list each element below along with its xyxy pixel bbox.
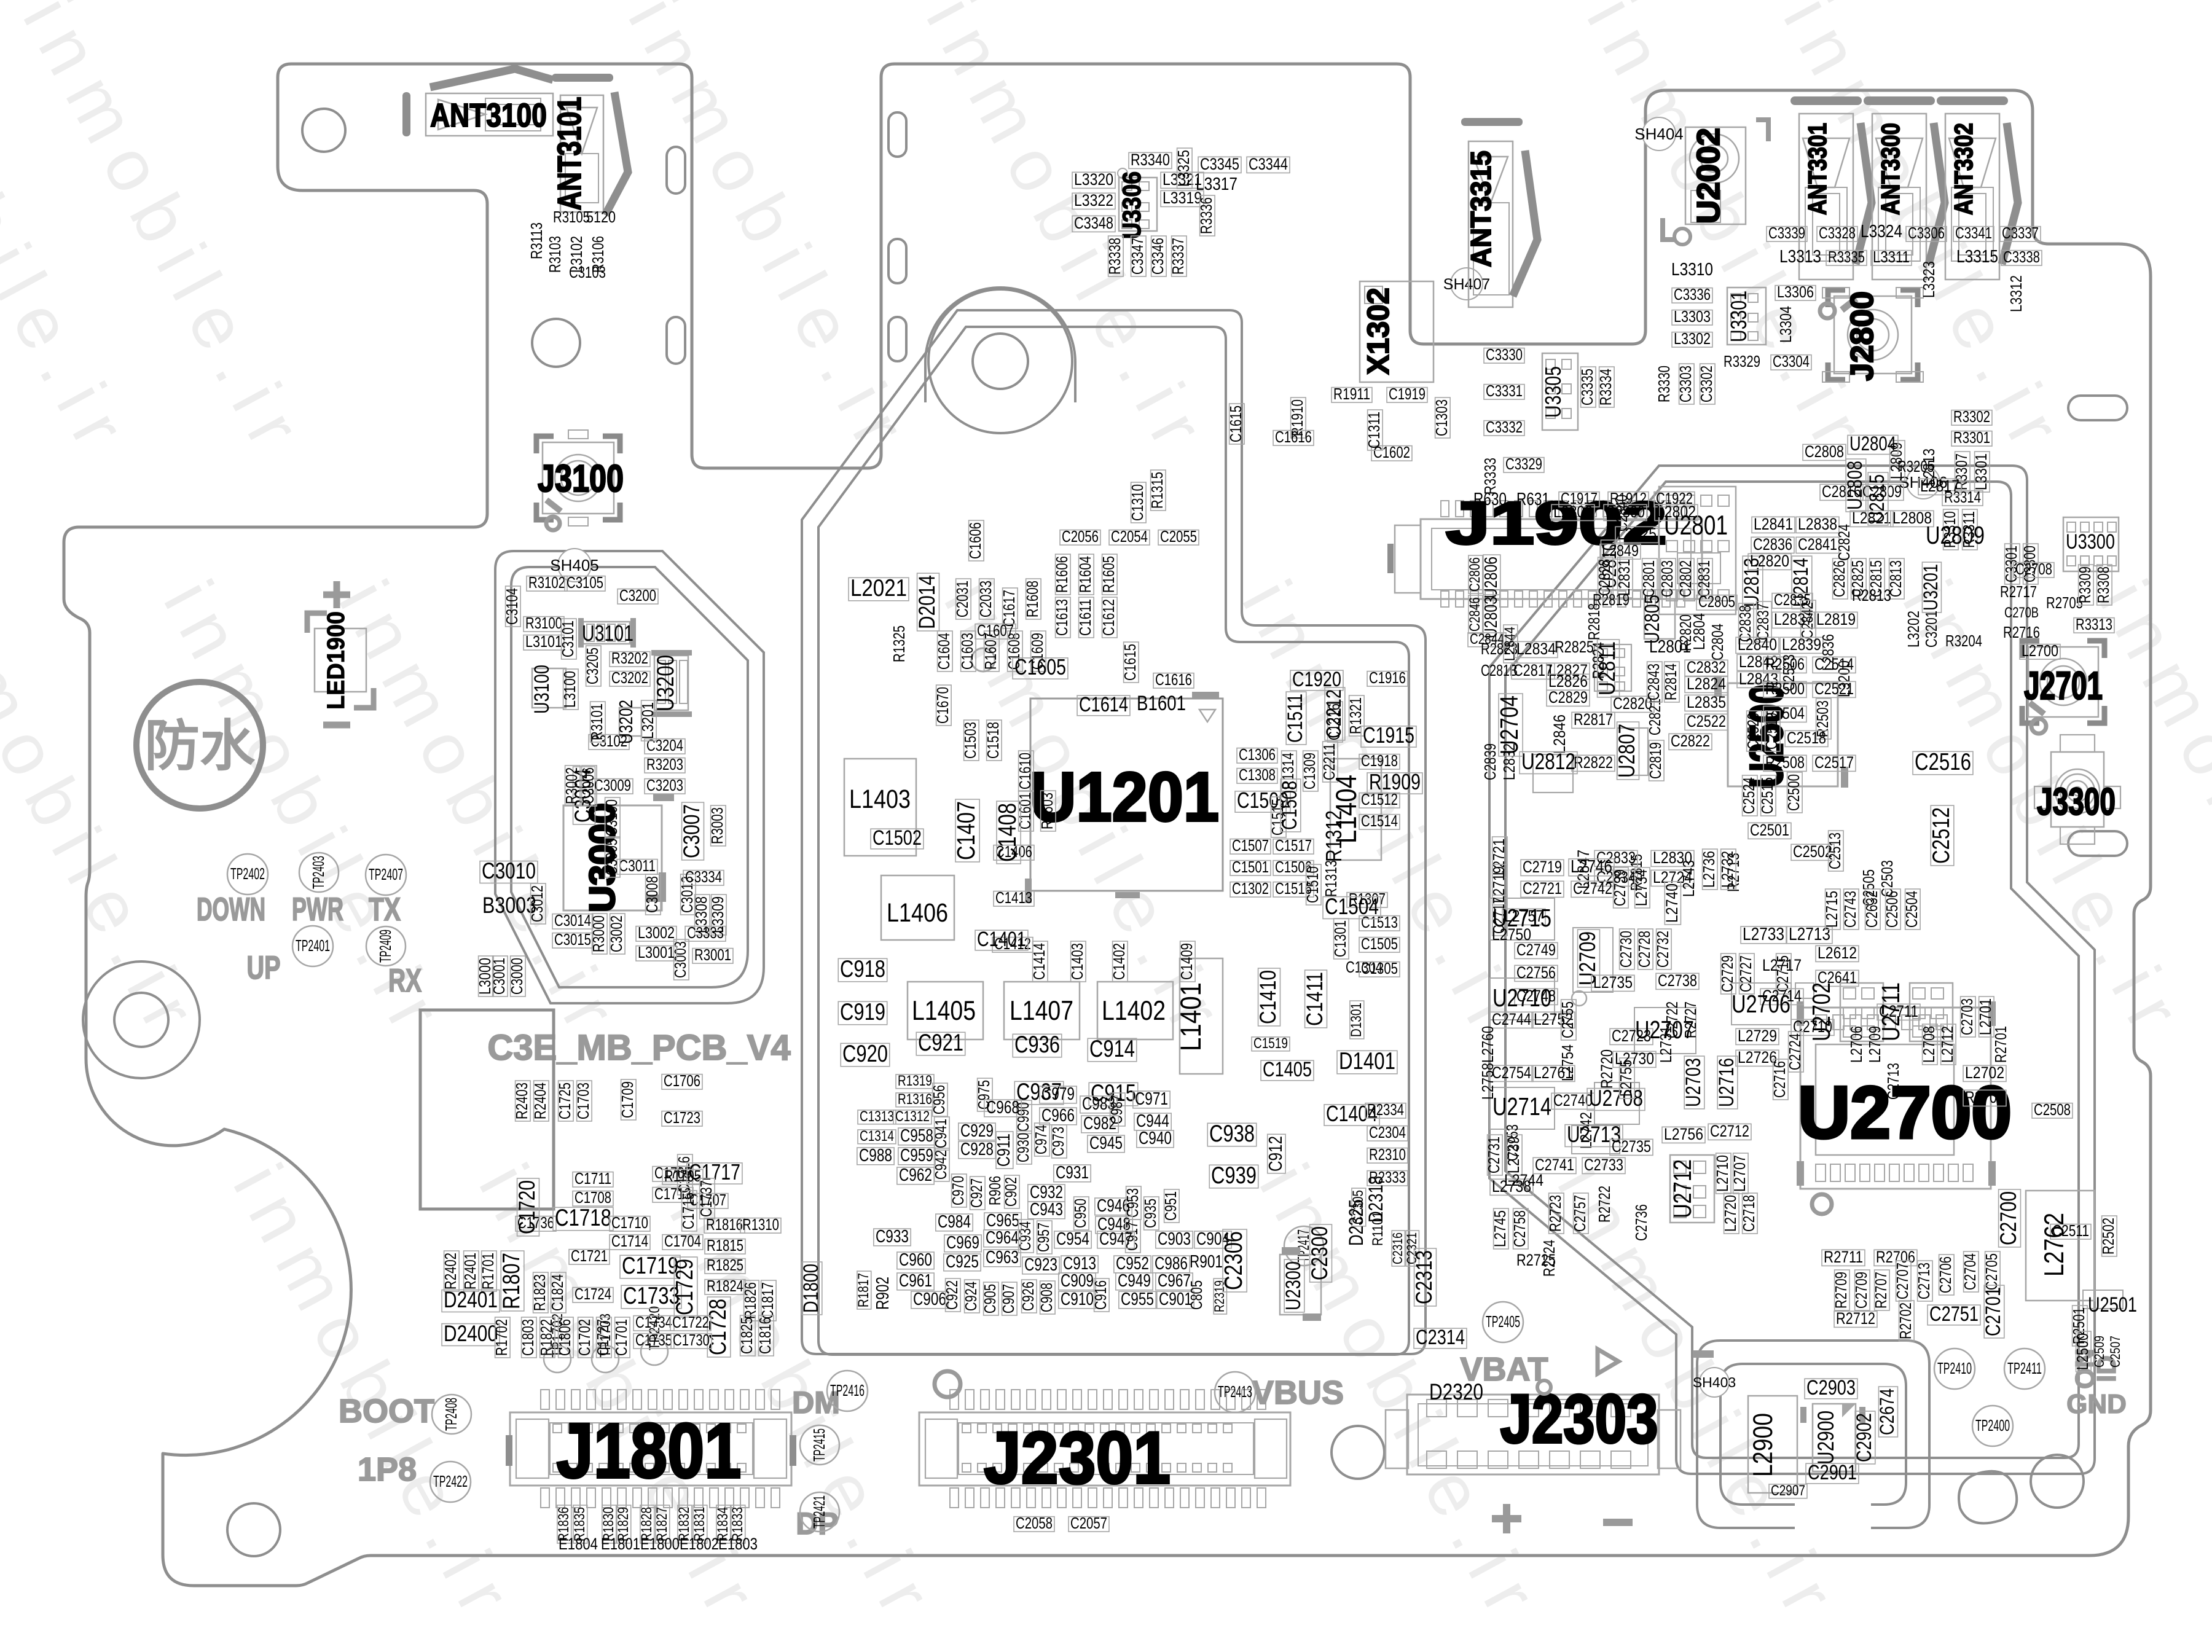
svg-text:R1909: R1909 — [1369, 770, 1421, 794]
svg-text:R2813: R2813 — [1852, 585, 1891, 605]
svg-text:防水: 防水 — [144, 716, 256, 777]
svg-text:L2743: L2743 — [1681, 860, 1698, 897]
svg-text:C1310: C1310 — [1129, 484, 1147, 521]
svg-text:ANT3302: ANT3302 — [1949, 123, 1978, 215]
svg-text:C935: C935 — [1142, 1199, 1159, 1228]
svg-text:L3306: L3306 — [1777, 284, 1814, 301]
svg-text:C2518: C2518 — [1787, 728, 1826, 747]
svg-text:C3330: C3330 — [1486, 346, 1523, 364]
svg-text:U2707: U2707 — [1635, 1016, 1694, 1044]
svg-text:L2745: L2745 — [1492, 1210, 1509, 1247]
svg-text:C1702: C1702 — [576, 1319, 594, 1356]
svg-text:C1503: C1503 — [962, 722, 979, 759]
svg-text:R1815: R1815 — [707, 1237, 743, 1255]
svg-text:C1414: C1414 — [1031, 943, 1048, 980]
svg-text:L2900: L2900 — [1748, 1413, 1778, 1477]
svg-text:R1816: R1816 — [706, 1216, 743, 1234]
svg-text:C3001: C3001 — [491, 958, 508, 995]
svg-text:C1610: C1610 — [1017, 753, 1034, 789]
svg-text:C2300: C2300 — [1306, 1226, 1332, 1280]
svg-text:L2720: L2720 — [1722, 1195, 1739, 1232]
svg-text:L2712: L2712 — [1939, 1026, 1956, 1063]
svg-text:C1308: C1308 — [1239, 767, 1276, 784]
svg-text:C933: C933 — [876, 1227, 909, 1247]
svg-text:R3333: R3333 — [1482, 458, 1499, 495]
svg-text:C928: C928 — [960, 1140, 994, 1159]
svg-text:E1801: E1801 — [601, 1534, 640, 1553]
svg-text:L2744: L2744 — [1504, 1170, 1543, 1189]
svg-text:C930: C930 — [1015, 1133, 1032, 1162]
svg-text:R1315: R1315 — [1149, 472, 1166, 509]
svg-text:C3335: C3335 — [1579, 369, 1596, 405]
svg-text:C2744: C2744 — [1492, 1009, 1531, 1028]
svg-text:C1724: C1724 — [575, 1286, 611, 1303]
svg-text:R2814: R2814 — [1663, 664, 1680, 700]
svg-text:R2334: R2334 — [1367, 1102, 1404, 1119]
svg-text:C2058: C2058 — [1016, 1515, 1053, 1532]
svg-text:C3003: C3003 — [672, 941, 689, 978]
svg-text:L3302: L3302 — [1674, 331, 1711, 348]
svg-text:C2727: C2727 — [1738, 955, 1755, 992]
svg-text:C805: C805 — [1188, 1280, 1206, 1310]
svg-text:C1512: C1512 — [1361, 791, 1398, 808]
svg-text:C969: C969 — [946, 1233, 979, 1253]
svg-text:C2523: C2523 — [1781, 654, 1798, 691]
svg-text:C2713: C2713 — [1916, 1262, 1933, 1299]
svg-text:C2509: C2509 — [2092, 1336, 2107, 1368]
svg-text:U2501: U2501 — [2088, 1293, 2137, 1317]
svg-text:C2802: C2802 — [1677, 560, 1695, 597]
svg-text:E1803: E1803 — [718, 1534, 758, 1553]
svg-text:C1721: C1721 — [571, 1248, 608, 1265]
svg-text:C2513: C2513 — [1827, 832, 1844, 869]
svg-text:C905: C905 — [982, 1284, 999, 1313]
svg-text:L2717: L2717 — [1762, 955, 1802, 974]
svg-text:C2731: C2731 — [1486, 1137, 1503, 1173]
svg-text:L1402: L1402 — [1102, 996, 1166, 1026]
svg-text:SH405: SH405 — [550, 556, 599, 574]
svg-text:C1603: C1603 — [959, 633, 976, 670]
svg-text:C912: C912 — [1265, 1136, 1286, 1172]
svg-text:C3006: C3006 — [580, 767, 597, 804]
svg-text:D2318: D2318 — [1365, 1176, 1387, 1223]
svg-text:L2736: L2736 — [1701, 851, 1718, 888]
svg-text:C943: C943 — [1030, 1200, 1063, 1219]
svg-text:L3323: L3323 — [1921, 261, 1938, 298]
svg-text:L2708: L2708 — [1921, 1026, 1938, 1063]
svg-text:C3008: C3008 — [644, 876, 661, 913]
svg-text:L3324: L3324 — [1861, 222, 1902, 241]
svg-text:C973: C973 — [1050, 1127, 1067, 1156]
svg-text:C3103: C3103 — [569, 264, 606, 281]
svg-text:C2521: C2521 — [1814, 679, 1854, 698]
svg-text:C3E_MB_PCB_V4: C3E_MB_PCB_V4 — [487, 1028, 790, 1068]
svg-text:VBUS: VBUS — [1252, 1374, 1344, 1411]
svg-text:C922: C922 — [944, 1280, 961, 1310]
svg-text:C2735: C2735 — [1612, 1137, 1651, 1156]
svg-text:C2033: C2033 — [978, 581, 995, 617]
svg-text:C2806: C2806 — [1467, 557, 1483, 592]
svg-text:C2718: C2718 — [1741, 1195, 1758, 1232]
svg-text:L2840: L2840 — [1738, 635, 1777, 654]
svg-text:TP2415: TP2415 — [810, 1428, 828, 1462]
svg-text:R1911: R1911 — [1333, 386, 1370, 403]
svg-text:R3335: R3335 — [1828, 249, 1865, 266]
svg-text:C2515: C2515 — [1759, 777, 1776, 814]
svg-text:C3303: C3303 — [1677, 366, 1695, 402]
svg-text:R3302: R3302 — [1953, 409, 1990, 426]
svg-text:U2715: U2715 — [1492, 904, 1551, 932]
svg-text:C956: C956 — [931, 1085, 948, 1114]
svg-text:R3103: R3103 — [547, 236, 564, 273]
svg-text:C2732: C2732 — [1655, 931, 1672, 968]
svg-text:R2310: R2310 — [1369, 1146, 1406, 1164]
svg-text:L2700: L2700 — [2022, 643, 2058, 660]
svg-text:C3012: C3012 — [529, 885, 546, 922]
svg-text:C1306: C1306 — [1239, 746, 1276, 764]
svg-text:C3005: C3005 — [603, 839, 621, 875]
svg-text:C2517: C2517 — [1814, 753, 1854, 772]
svg-text:J2301: J2301 — [984, 1417, 1171, 1499]
svg-text:C1722: C1722 — [672, 1314, 709, 1331]
svg-text:C910: C910 — [1061, 1290, 1094, 1309]
svg-text:C2054: C2054 — [1111, 528, 1148, 546]
svg-text:C1507: C1507 — [1232, 837, 1269, 855]
svg-text:C963: C963 — [986, 1248, 1019, 1267]
svg-text:C964: C964 — [986, 1228, 1019, 1248]
svg-text:R2822: R2822 — [1574, 753, 1613, 772]
svg-text:L1405: L1405 — [912, 996, 976, 1026]
svg-text:L2735: L2735 — [1593, 973, 1633, 992]
svg-text:C966: C966 — [1041, 1106, 1075, 1125]
svg-text:C971: C971 — [1135, 1089, 1168, 1109]
svg-text:L2739: L2739 — [1505, 1137, 1523, 1173]
svg-text:C2707: C2707 — [1894, 1262, 1912, 1299]
svg-text:C2846: C2846 — [1467, 597, 1483, 632]
svg-text:R3330: R3330 — [1656, 366, 1673, 402]
svg-text:U2815: U2815 — [1865, 474, 1889, 523]
svg-text:R1605: R1605 — [1100, 556, 1118, 593]
svg-text:C1725: C1725 — [557, 1082, 574, 1119]
svg-text:R906: R906 — [987, 1176, 1004, 1205]
svg-text:DOWN: DOWN — [197, 891, 265, 928]
svg-text:C2031: C2031 — [954, 581, 971, 617]
svg-text:C2508: C2508 — [2034, 1102, 2071, 1119]
svg-text:C2901: C2901 — [1808, 1461, 1857, 1484]
svg-text:C1616: C1616 — [1275, 429, 1312, 446]
svg-text:ANT3100: ANT3100 — [430, 97, 547, 134]
svg-text:L3310: L3310 — [1671, 260, 1713, 280]
svg-text:U3305: U3305 — [1541, 366, 1566, 418]
svg-text:C929: C929 — [960, 1121, 994, 1141]
svg-text:R3101: R3101 — [589, 703, 606, 740]
svg-text:L1404: L1404 — [1330, 775, 1363, 844]
svg-text:L2803: L2803 — [1553, 502, 1593, 521]
svg-text:L2612: L2612 — [1818, 943, 1857, 962]
svg-text:TP2410: TP2410 — [1937, 1359, 1972, 1377]
svg-text:U2704: U2704 — [1495, 695, 1523, 754]
svg-text:L3301: L3301 — [1973, 453, 1990, 490]
svg-text:C2056: C2056 — [1062, 528, 1099, 546]
svg-text:C1611: C1611 — [1077, 599, 1094, 636]
svg-text:C1614: C1614 — [1079, 693, 1128, 716]
svg-text:L3319: L3319 — [1163, 188, 1202, 207]
svg-text:R3000: R3000 — [590, 915, 608, 952]
svg-text:TP2422: TP2422 — [433, 1472, 468, 1490]
svg-text:L2707: L2707 — [1732, 1155, 1749, 1192]
svg-text:C1915: C1915 — [1363, 723, 1414, 748]
svg-text:R2404: R2404 — [532, 1082, 549, 1119]
svg-text:L2732: L2732 — [1719, 851, 1736, 888]
svg-text:U2804: U2804 — [1849, 433, 1896, 455]
svg-text:C2313: C2313 — [1411, 1250, 1437, 1304]
svg-text:C961: C961 — [899, 1271, 932, 1291]
svg-text:C2805: C2805 — [1698, 593, 1735, 611]
svg-text:U2300: U2300 — [1282, 1261, 1305, 1310]
svg-text:C1403: C1403 — [1069, 943, 1086, 980]
svg-text:R2702: R2702 — [1897, 1302, 1915, 1339]
svg-text:C1313: C1313 — [860, 1108, 894, 1125]
svg-text:C2803: C2803 — [1659, 560, 1676, 597]
svg-text:C1409: C1409 — [1179, 943, 1196, 980]
svg-text:C3347: C3347 — [1129, 238, 1147, 275]
svg-text:C2632: C2632 — [1864, 891, 1881, 928]
svg-text:C1803: C1803 — [520, 1319, 537, 1356]
svg-text:SH407: SH407 — [1443, 276, 1490, 293]
svg-text:C908: C908 — [1038, 1283, 1056, 1312]
svg-text:C2742: C2742 — [1573, 879, 1612, 898]
svg-text:C1302: C1302 — [1232, 880, 1269, 898]
svg-text:C957: C957 — [1035, 1223, 1053, 1252]
svg-text:U2703: U2703 — [1682, 1058, 1705, 1107]
svg-text:C3007: C3007 — [678, 804, 704, 858]
svg-text:C927: C927 — [968, 1178, 986, 1208]
svg-text:C2712: C2712 — [1710, 1121, 1749, 1140]
svg-text:L2835: L2835 — [1687, 692, 1726, 711]
svg-text:C2836: C2836 — [1753, 534, 1792, 554]
svg-text:R1321: R1321 — [1347, 697, 1365, 734]
svg-text:R2709: R2709 — [1833, 1272, 1850, 1309]
svg-text:C2738: C2738 — [1658, 971, 1697, 990]
svg-text:U2712: U2712 — [1668, 1159, 1696, 1218]
svg-text:C1919: C1919 — [1389, 386, 1426, 403]
svg-text:L2729: L2729 — [1738, 1026, 1777, 1045]
svg-text:L2831: L2831 — [1616, 559, 1633, 596]
svg-text:C270B: C270B — [2004, 605, 2039, 621]
svg-text:C2721: C2721 — [1523, 879, 1562, 898]
svg-text:C919: C919 — [840, 999, 885, 1025]
svg-text:R1823: R1823 — [531, 1274, 549, 1311]
svg-text:C1729: C1729 — [672, 1259, 698, 1315]
svg-text:C967: C967 — [1158, 1271, 1191, 1291]
svg-text:C3328: C3328 — [1819, 225, 1856, 242]
svg-text:C2907: C2907 — [1771, 1482, 1805, 1499]
svg-text:E1802: E1802 — [680, 1534, 719, 1553]
svg-text:R3105: R3105 — [553, 209, 590, 226]
svg-text:ANT3315: ANT3315 — [1465, 151, 1497, 267]
svg-text:R3205: R3205 — [1897, 458, 1934, 476]
svg-text:C3338: C3338 — [2003, 249, 2040, 266]
svg-text:L2710: L2710 — [1714, 1155, 1732, 1192]
svg-text:L2730: L2730 — [1615, 1049, 1654, 1068]
svg-text:TP2401: TP2401 — [296, 936, 330, 955]
svg-text:C1730: C1730 — [673, 1332, 710, 1349]
svg-text:L2734: L2734 — [1633, 869, 1650, 906]
svg-text:C903: C903 — [1158, 1229, 1191, 1249]
svg-text:C947: C947 — [1099, 1229, 1132, 1249]
svg-text:U2807: U2807 — [1614, 724, 1639, 778]
svg-text:C2822: C2822 — [1671, 731, 1710, 750]
svg-text:C2724: C2724 — [1787, 1033, 1804, 1070]
svg-text:C1510: C1510 — [1304, 866, 1322, 903]
svg-text:L3001: L3001 — [638, 944, 675, 961]
svg-text:L2754: L2754 — [1559, 1044, 1577, 1081]
svg-text:C2828: C2828 — [1596, 559, 1614, 596]
svg-text:TP2421: TP2421 — [810, 1495, 828, 1529]
svg-text:C1312: C1312 — [895, 1108, 930, 1125]
svg-text:L3202: L3202 — [1905, 611, 1923, 648]
svg-text:L2760: L2760 — [1480, 1026, 1497, 1063]
svg-text:C1607: C1607 — [977, 622, 1014, 640]
svg-text:B1601: B1601 — [1137, 692, 1186, 715]
svg-text:LED1900: LED1900 — [323, 611, 350, 710]
svg-text:C1411: C1411 — [1301, 972, 1327, 1026]
svg-text:C1501: C1501 — [1232, 859, 1269, 876]
svg-text:U2900: U2900 — [1813, 1411, 1838, 1465]
svg-text:U2811: U2811 — [1594, 641, 1620, 695]
svg-text:U3301: U3301 — [1727, 291, 1751, 342]
svg-text:R1604: R1604 — [1077, 556, 1094, 593]
svg-text:C1511: C1511 — [1284, 694, 1307, 743]
svg-text:R901: R901 — [1190, 1252, 1223, 1272]
svg-text:C2501: C2501 — [1750, 820, 1789, 839]
svg-text:C2705: C2705 — [1983, 1253, 2001, 1290]
svg-text:U2716: U2716 — [1715, 1058, 1738, 1107]
svg-text:C2733: C2733 — [1584, 1155, 1623, 1174]
svg-text:ANT3301: ANT3301 — [1803, 123, 1832, 215]
svg-text:C2314: C2314 — [1416, 1326, 1465, 1349]
svg-text:L3002: L3002 — [638, 925, 675, 942]
svg-text:5120: 5120 — [586, 209, 616, 226]
svg-text:ANT3300: ANT3300 — [1876, 123, 1905, 215]
svg-text:C2758: C2758 — [1512, 1210, 1529, 1247]
svg-text:U2710: U2710 — [1492, 984, 1551, 1012]
svg-text:R3113: R3113 — [528, 222, 546, 259]
svg-text:L3304: L3304 — [1778, 306, 1795, 343]
svg-text:C907: C907 — [1000, 1284, 1018, 1313]
svg-text:C2831: C2831 — [1696, 560, 1713, 597]
svg-text:C3104: C3104 — [504, 588, 521, 625]
svg-text:C979: C979 — [1041, 1084, 1075, 1104]
svg-text:C3302: C3302 — [1698, 366, 1716, 402]
svg-text:C1517: C1517 — [1275, 837, 1312, 855]
svg-text:C3341: C3341 — [1955, 225, 1992, 242]
svg-text:C3332: C3332 — [1486, 419, 1523, 436]
svg-text:C1615: C1615 — [1228, 405, 1245, 442]
svg-text:C1918: C1918 — [1361, 753, 1398, 770]
svg-text:C2703: C2703 — [1959, 998, 1976, 1035]
svg-text:C2055: C2055 — [1160, 528, 1197, 546]
svg-text:J2303: J2303 — [1500, 1380, 1658, 1457]
svg-text:C939: C939 — [1211, 1162, 1257, 1189]
svg-text:C2500: C2500 — [1786, 774, 1803, 811]
svg-text:L2839: L2839 — [1782, 635, 1821, 654]
svg-text:C2704: C2704 — [1962, 1253, 1979, 1290]
svg-text:C1311: C1311 — [1366, 412, 1383, 448]
svg-text:C2730: C2730 — [1618, 931, 1635, 968]
svg-text:BOOT: BOOT — [339, 1393, 434, 1430]
svg-text:C1612: C1612 — [1100, 599, 1118, 636]
svg-text:C1708: C1708 — [575, 1189, 611, 1207]
svg-text:C2316: C2316 — [1390, 1232, 1405, 1264]
svg-text:C2824: C2824 — [1836, 524, 1853, 561]
svg-text:C2520: C2520 — [1745, 713, 1762, 750]
svg-text:C2706: C2706 — [1937, 1256, 1955, 1293]
svg-text:C2506: C2506 — [1884, 891, 1901, 928]
svg-text:R1822: R1822 — [538, 1319, 555, 1356]
svg-text:C2306: C2306 — [1219, 1231, 1247, 1290]
svg-text:L2819: L2819 — [1816, 609, 1856, 628]
svg-text:C2507: C2507 — [2108, 1336, 2123, 1368]
svg-text:L1407: L1407 — [1010, 996, 1073, 1026]
svg-text:L3322: L3322 — [1074, 190, 1113, 209]
svg-text:R1817: R1817 — [855, 1273, 872, 1307]
svg-text:C2751: C2751 — [1929, 1302, 1979, 1326]
svg-text:R3309: R3309 — [2077, 566, 2094, 603]
svg-text:L2802: L2802 — [1657, 502, 1696, 521]
svg-text:C2524: C2524 — [1741, 777, 1758, 814]
svg-text:L2500: L2500 — [2074, 1333, 2092, 1370]
svg-text:R2818: R2818 — [1586, 603, 1603, 640]
svg-text:C1816: C1816 — [757, 1317, 774, 1354]
svg-text:C2755: C2755 — [1559, 1001, 1577, 1038]
svg-text:TP2403: TP2403 — [309, 856, 327, 889]
svg-text:L2837: L2837 — [1774, 609, 1813, 628]
svg-text:C955: C955 — [1121, 1290, 1154, 1309]
svg-text:C918: C918 — [840, 956, 885, 982]
svg-text:C1701: C1701 — [613, 1319, 630, 1356]
svg-text:C3339: C3339 — [1768, 225, 1805, 242]
svg-text:L1401: L1401 — [1175, 982, 1207, 1051]
svg-text:C3334: C3334 — [685, 869, 722, 886]
svg-text:C925: C925 — [946, 1252, 979, 1272]
svg-text:C3200: C3200 — [619, 587, 656, 605]
svg-text:U3202: U3202 — [616, 700, 637, 744]
svg-text:R1826: R1826 — [742, 1282, 759, 1319]
svg-text:C2700: C2700 — [1995, 1191, 2021, 1245]
svg-text:L2733: L2733 — [1743, 925, 1784, 944]
svg-text:TP2411: TP2411 — [2007, 1359, 2042, 1377]
svg-text:TP2409: TP2409 — [376, 930, 394, 963]
svg-text:R2502: R2502 — [2100, 1218, 2117, 1255]
svg-text:U3201: U3201 — [1920, 564, 1942, 611]
svg-text:C1405: C1405 — [1263, 1058, 1312, 1081]
svg-text:U2809: U2809 — [1926, 521, 1985, 549]
svg-text:L2820: L2820 — [1750, 551, 1789, 570]
svg-text:C1718: C1718 — [555, 1205, 611, 1231]
svg-text:C2674: C2674 — [1876, 1388, 1898, 1435]
svg-text:C2701: C2701 — [1982, 1287, 2005, 1336]
svg-text:U2805: U2805 — [1641, 595, 1664, 644]
svg-text:C934: C934 — [1017, 1221, 1034, 1251]
svg-text:L1406: L1406 — [887, 899, 948, 928]
svg-text:GND: GND — [2066, 1389, 2127, 1419]
svg-text:R1316: R1316 — [898, 1091, 932, 1108]
svg-text:D2401: D2401 — [444, 1286, 498, 1312]
svg-text:C2516: C2516 — [1915, 749, 1971, 775]
svg-text:R3301: R3301 — [1953, 429, 1990, 447]
svg-text:C2304: C2304 — [1369, 1124, 1406, 1141]
